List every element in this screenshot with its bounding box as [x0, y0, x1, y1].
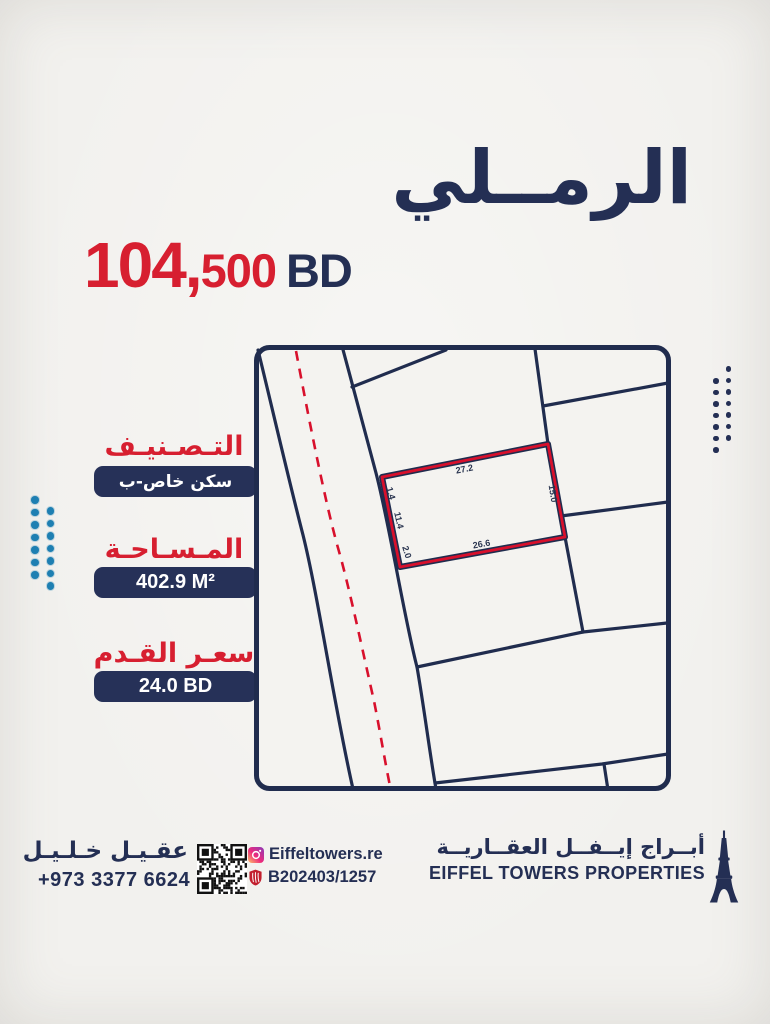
price-per-foot-label: سعـر القـدم [88, 638, 260, 669]
instagram-handle: Eiffeltowers.re [269, 845, 383, 864]
map-border [257, 348, 669, 789]
agent-name: عقـيـل خـلـيـل [38, 838, 188, 864]
price-per-foot-value-badge: 24.0 BD [94, 671, 257, 702]
price-amount-minor: 500 [201, 243, 276, 298]
price-currency: BD [286, 243, 352, 298]
decor-dots-teal [31, 496, 54, 590]
decor-dots-navy [713, 366, 731, 453]
social-block: Eiffeltowers.re B202403/1257 [248, 845, 383, 887]
area-label: المـسـاحـة [88, 534, 260, 565]
classification-label: التـصـنيـف [88, 431, 260, 462]
company-name-arabic: أبــراج إيــفــل العقــاريــة [415, 835, 705, 859]
rera-shield-icon [248, 869, 263, 886]
agent-contact: عقـيـل خـلـيـل +973 3377 6624 [38, 838, 188, 892]
classification-value-badge: سكن خاص-ب [94, 466, 257, 497]
instagram-icon [248, 847, 264, 863]
instagram-row: Eiffeltowers.re [248, 845, 383, 864]
property-name-title: الرمــلي [391, 130, 692, 226]
flyer-background: الرمــلي 104, 500 BD التـصـنيـف سكن خاص-… [0, 0, 770, 1024]
dim-right: 15.0 [547, 484, 560, 503]
company-name-english: EIFFEL TOWERS PROPERTIES [415, 863, 705, 884]
price: 104, 500 BD [84, 228, 352, 302]
plot-boundaries [258, 346, 668, 790]
price-amount-major: 104, [84, 228, 201, 302]
company-block: أبــراج إيــفــل العقــاريــة EIFFEL TOW… [415, 835, 705, 884]
plot-map: 27.2 15.0 26.6 1.4 11.4 2.0 [254, 345, 671, 791]
qr-code [197, 844, 247, 894]
plot-map-svg: 27.2 15.0 26.6 1.4 11.4 2.0 [254, 345, 671, 791]
registration-row: B202403/1257 [248, 868, 383, 887]
agent-phone: +973 3377 6624 [38, 869, 188, 892]
dim-top: 27.2 [455, 462, 474, 475]
registration-number: B202403/1257 [268, 868, 376, 887]
eiffel-tower-logo-icon [709, 829, 739, 907]
dim-left-bottom: 2.0 [400, 545, 413, 560]
area-value-badge: 402.9 M² [94, 567, 257, 598]
